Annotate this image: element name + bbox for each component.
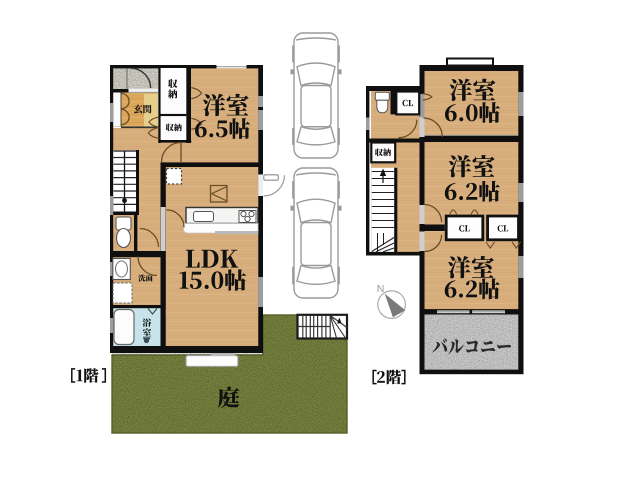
- svg-text:N: N: [377, 283, 385, 295]
